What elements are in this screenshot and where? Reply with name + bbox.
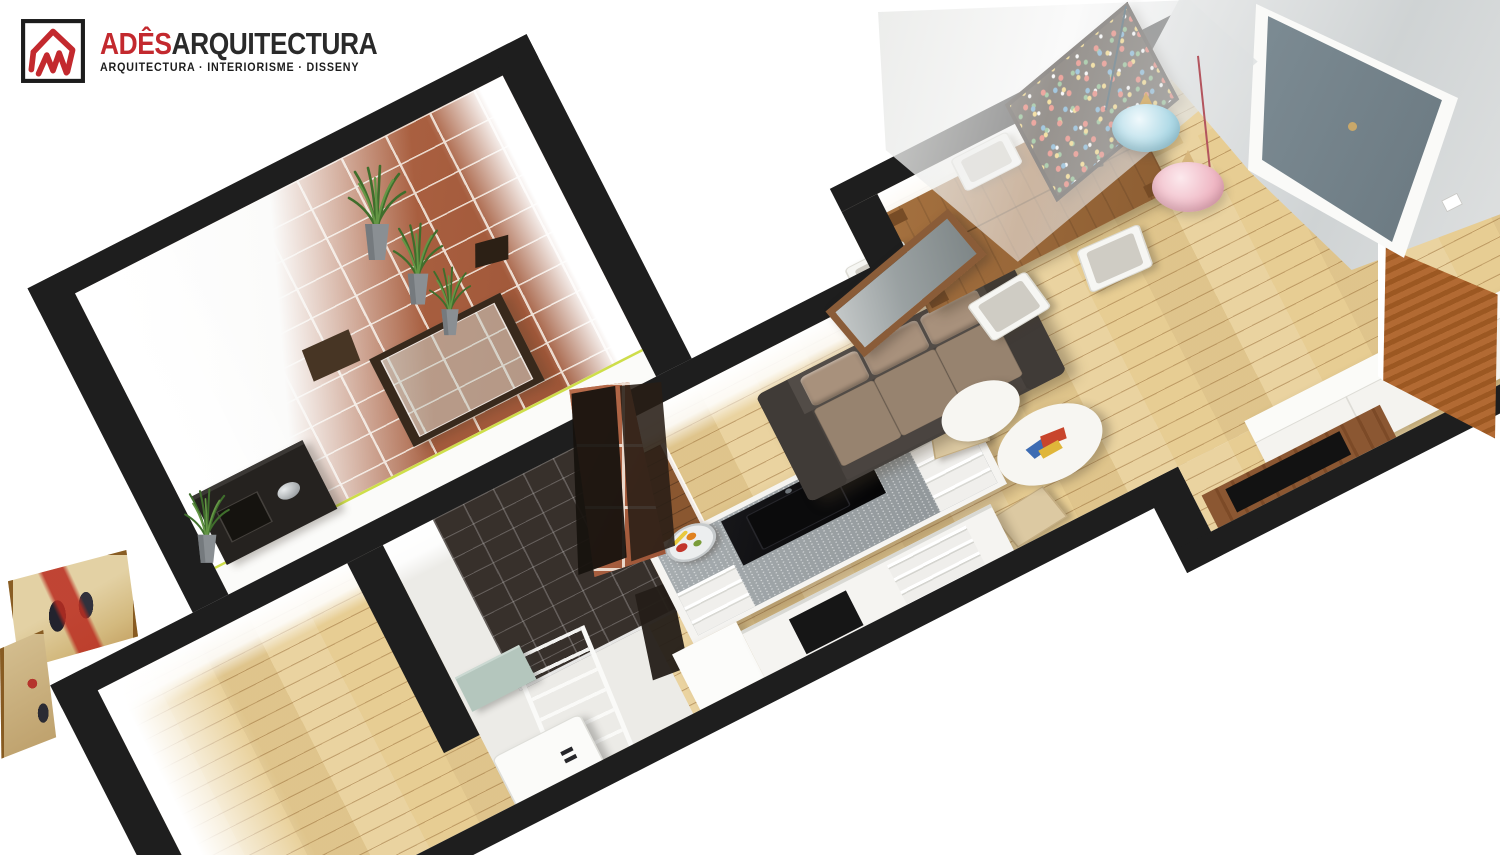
- render-canvas: ADÊSARQUITECTURA ARQUITECTURA · INTERIOR…: [0, 0, 1500, 855]
- pendant-lamp-pink: [1152, 162, 1224, 212]
- wardrobe-closet: [1378, 230, 1500, 445]
- brand-text-block: ADÊSARQUITECTURA ARQUITECTURA · INTERIOR…: [100, 28, 426, 75]
- washer-controls: [564, 754, 577, 764]
- house-icon: [20, 18, 86, 84]
- brand-name-primary: ADÊS: [100, 26, 172, 61]
- brand-name: ADÊSARQUITECTURA: [100, 28, 377, 61]
- brand-name-secondary: ARQUITECTURA: [172, 26, 378, 61]
- coffee-station-plant: [180, 488, 234, 566]
- potted-grass-plant: [426, 266, 474, 338]
- door-knob: [1348, 122, 1357, 131]
- brand-tagline: ARQUITECTURA · INTERIORISME · DISSENY: [100, 62, 403, 74]
- kettle: [275, 478, 303, 503]
- closet-wood-front: [1378, 230, 1500, 445]
- terrace-glazed-door: [560, 382, 675, 577]
- entry-door-unit: [1240, 0, 1470, 260]
- pendant-lamp-blue: [1112, 104, 1180, 152]
- brand-logo: ADÊSARQUITECTURA ARQUITECTURA · INTERIOR…: [20, 18, 426, 84]
- fruit-lime: [692, 539, 702, 548]
